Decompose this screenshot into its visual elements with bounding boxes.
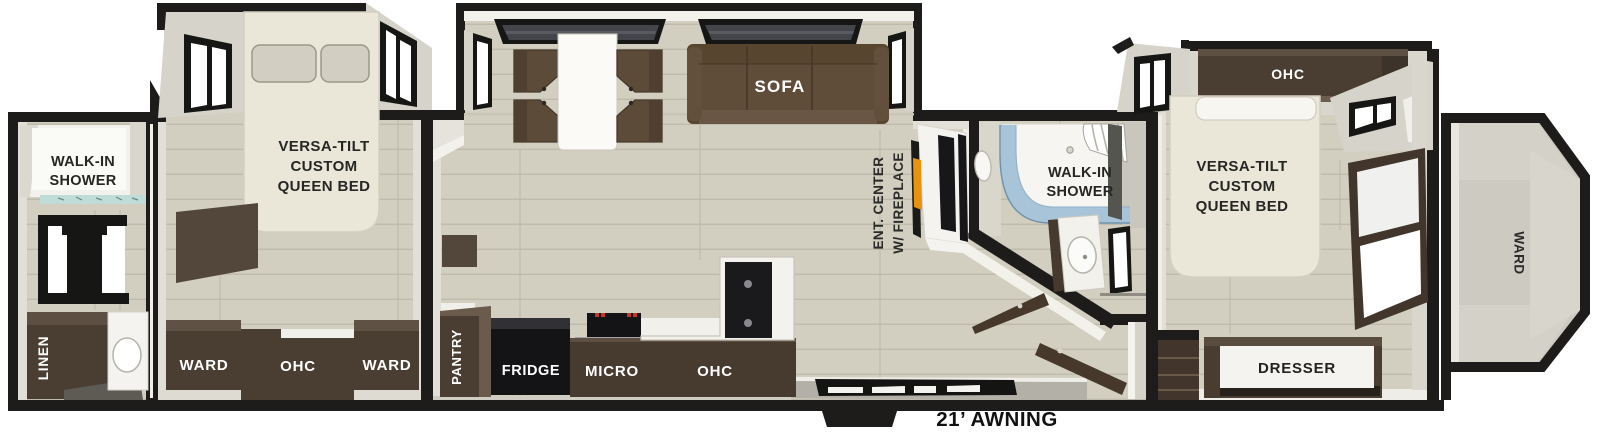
svg-text:OHC: OHC: [280, 358, 316, 375]
svg-text:SOFA: SOFA: [754, 77, 805, 96]
svg-text:WARD: WARD: [362, 357, 411, 374]
svg-text:MICRO: MICRO: [585, 363, 639, 380]
svg-text:SHOWER: SHOWER: [1046, 184, 1113, 200]
svg-text:QUEEN BED: QUEEN BED: [278, 178, 371, 195]
svg-text:LINEN: LINEN: [36, 336, 51, 381]
svg-text:W/ FIREPLACE: W/ FIREPLACE: [891, 152, 906, 254]
svg-text:WARD: WARD: [1511, 231, 1526, 274]
svg-text:CUSTOM: CUSTOM: [290, 158, 357, 175]
svg-text:ENT. CENTER: ENT. CENTER: [871, 157, 886, 250]
svg-text:VERSA-TILT: VERSA-TILT: [1196, 158, 1287, 175]
svg-text:21’ AWNING: 21’ AWNING: [936, 408, 1058, 431]
svg-text:CUSTOM: CUSTOM: [1208, 178, 1275, 195]
svg-text:QUEEN BED: QUEEN BED: [1196, 198, 1289, 215]
svg-text:WARD: WARD: [179, 357, 228, 374]
svg-text:FRIDGE: FRIDGE: [502, 363, 560, 379]
svg-text:SHOWER: SHOWER: [49, 173, 116, 189]
svg-text:PANTRY: PANTRY: [449, 329, 464, 385]
svg-text:VERSA-TILT: VERSA-TILT: [278, 138, 369, 155]
svg-text:OHC: OHC: [697, 363, 733, 380]
svg-text:DRESSER: DRESSER: [1258, 360, 1336, 377]
svg-text:WALK-IN: WALK-IN: [51, 154, 115, 170]
svg-text:WALK-IN: WALK-IN: [1048, 165, 1112, 181]
svg-text:OHC: OHC: [1271, 66, 1305, 82]
